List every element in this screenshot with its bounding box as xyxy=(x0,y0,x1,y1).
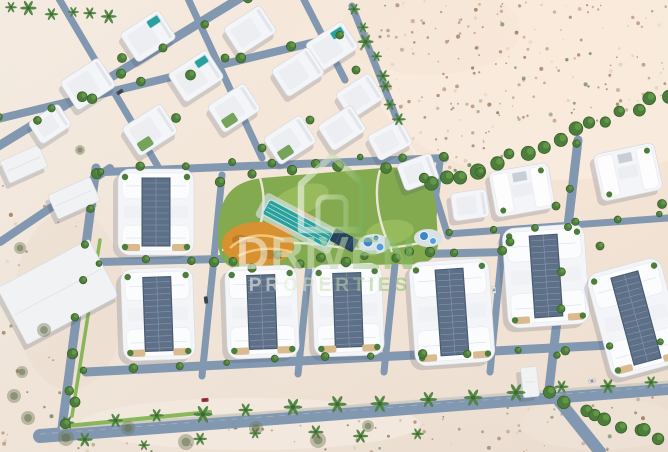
car xyxy=(201,398,208,402)
masterplan-scene: DRIVEN PROPERTIES xyxy=(0,0,668,452)
splash-pad xyxy=(414,229,442,247)
watermark-brand-text: DRIVEN xyxy=(236,227,416,279)
villa xyxy=(445,189,490,226)
townhouse-block xyxy=(113,169,194,259)
solar-panel-array xyxy=(529,234,563,318)
townhouse-block xyxy=(403,257,495,371)
aerial-community-render: DRIVEN PROPERTIES xyxy=(0,0,668,452)
townhouse-block xyxy=(115,267,195,366)
solar-panel-array xyxy=(142,178,170,246)
scene-layers xyxy=(0,0,668,452)
solar-panel-array xyxy=(143,277,174,352)
car xyxy=(204,296,208,303)
car xyxy=(492,286,496,293)
solar-panel-array xyxy=(435,268,469,356)
watermark-subtitle-text: PROPERTIES xyxy=(249,275,411,296)
